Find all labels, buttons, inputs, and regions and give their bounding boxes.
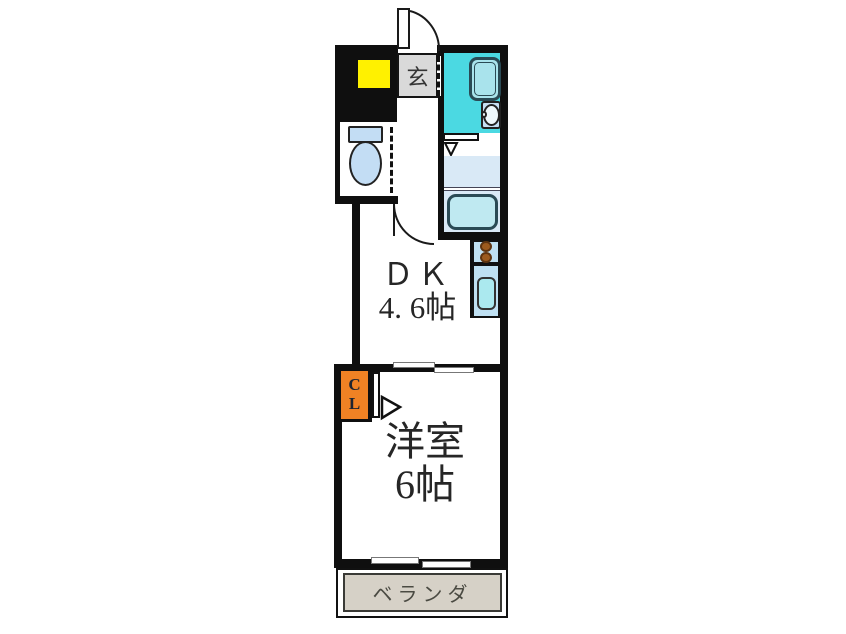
western-room-size: 6帖 xyxy=(350,463,500,506)
window-left xyxy=(371,557,419,564)
entrance-door-arc xyxy=(406,8,442,53)
dk-room-label: ＤＫ 4. 6帖 xyxy=(355,258,480,325)
wall-right xyxy=(500,45,508,568)
wall-kitchen-top xyxy=(444,232,500,240)
veranda-label: ベランダ xyxy=(373,578,473,607)
western-room-label: 洋室 6帖 xyxy=(350,420,500,506)
bath-door-dashes xyxy=(437,56,441,96)
bathtub-inner xyxy=(474,62,496,96)
bathtub xyxy=(469,57,501,101)
washroom-divider xyxy=(444,187,500,191)
toilet-door-dashes xyxy=(388,127,393,193)
floor-plan: 玄 ＤＫ 4. 6帖 C L xyxy=(0,0,846,634)
closet-letter-l: L xyxy=(349,395,360,414)
sliding-door-left-panel xyxy=(393,362,435,368)
dk-door-arc xyxy=(392,202,438,248)
sliding-door-right-panel xyxy=(434,367,474,373)
bathroom-door-strip xyxy=(443,133,479,141)
closet-door-triangle-icon xyxy=(380,395,403,420)
washroom-entry-triangle-icon xyxy=(444,142,459,157)
closet-door-panel xyxy=(372,372,380,418)
western-room-name: 洋室 xyxy=(350,420,500,463)
toilet-bowl xyxy=(349,141,382,186)
wall-toilet-bottom xyxy=(335,196,398,204)
wall-top-right xyxy=(437,45,508,53)
closet-box: C L xyxy=(341,371,368,419)
washing-machine-pan xyxy=(447,194,498,230)
closet-letter-c: C xyxy=(348,376,360,395)
entrance-label: 玄 xyxy=(406,60,428,92)
dk-size: 4. 6帖 xyxy=(355,291,480,324)
stove-burner-top xyxy=(480,241,492,252)
veranda-deck: ベランダ xyxy=(343,573,502,612)
dk-name: ＤＫ xyxy=(355,258,480,291)
washbasin-faucet xyxy=(481,111,487,118)
yellow-marker xyxy=(358,60,390,88)
window-right xyxy=(422,561,471,568)
entrance-genkan: 玄 xyxy=(397,53,438,98)
stove-burner-bottom xyxy=(480,252,492,263)
